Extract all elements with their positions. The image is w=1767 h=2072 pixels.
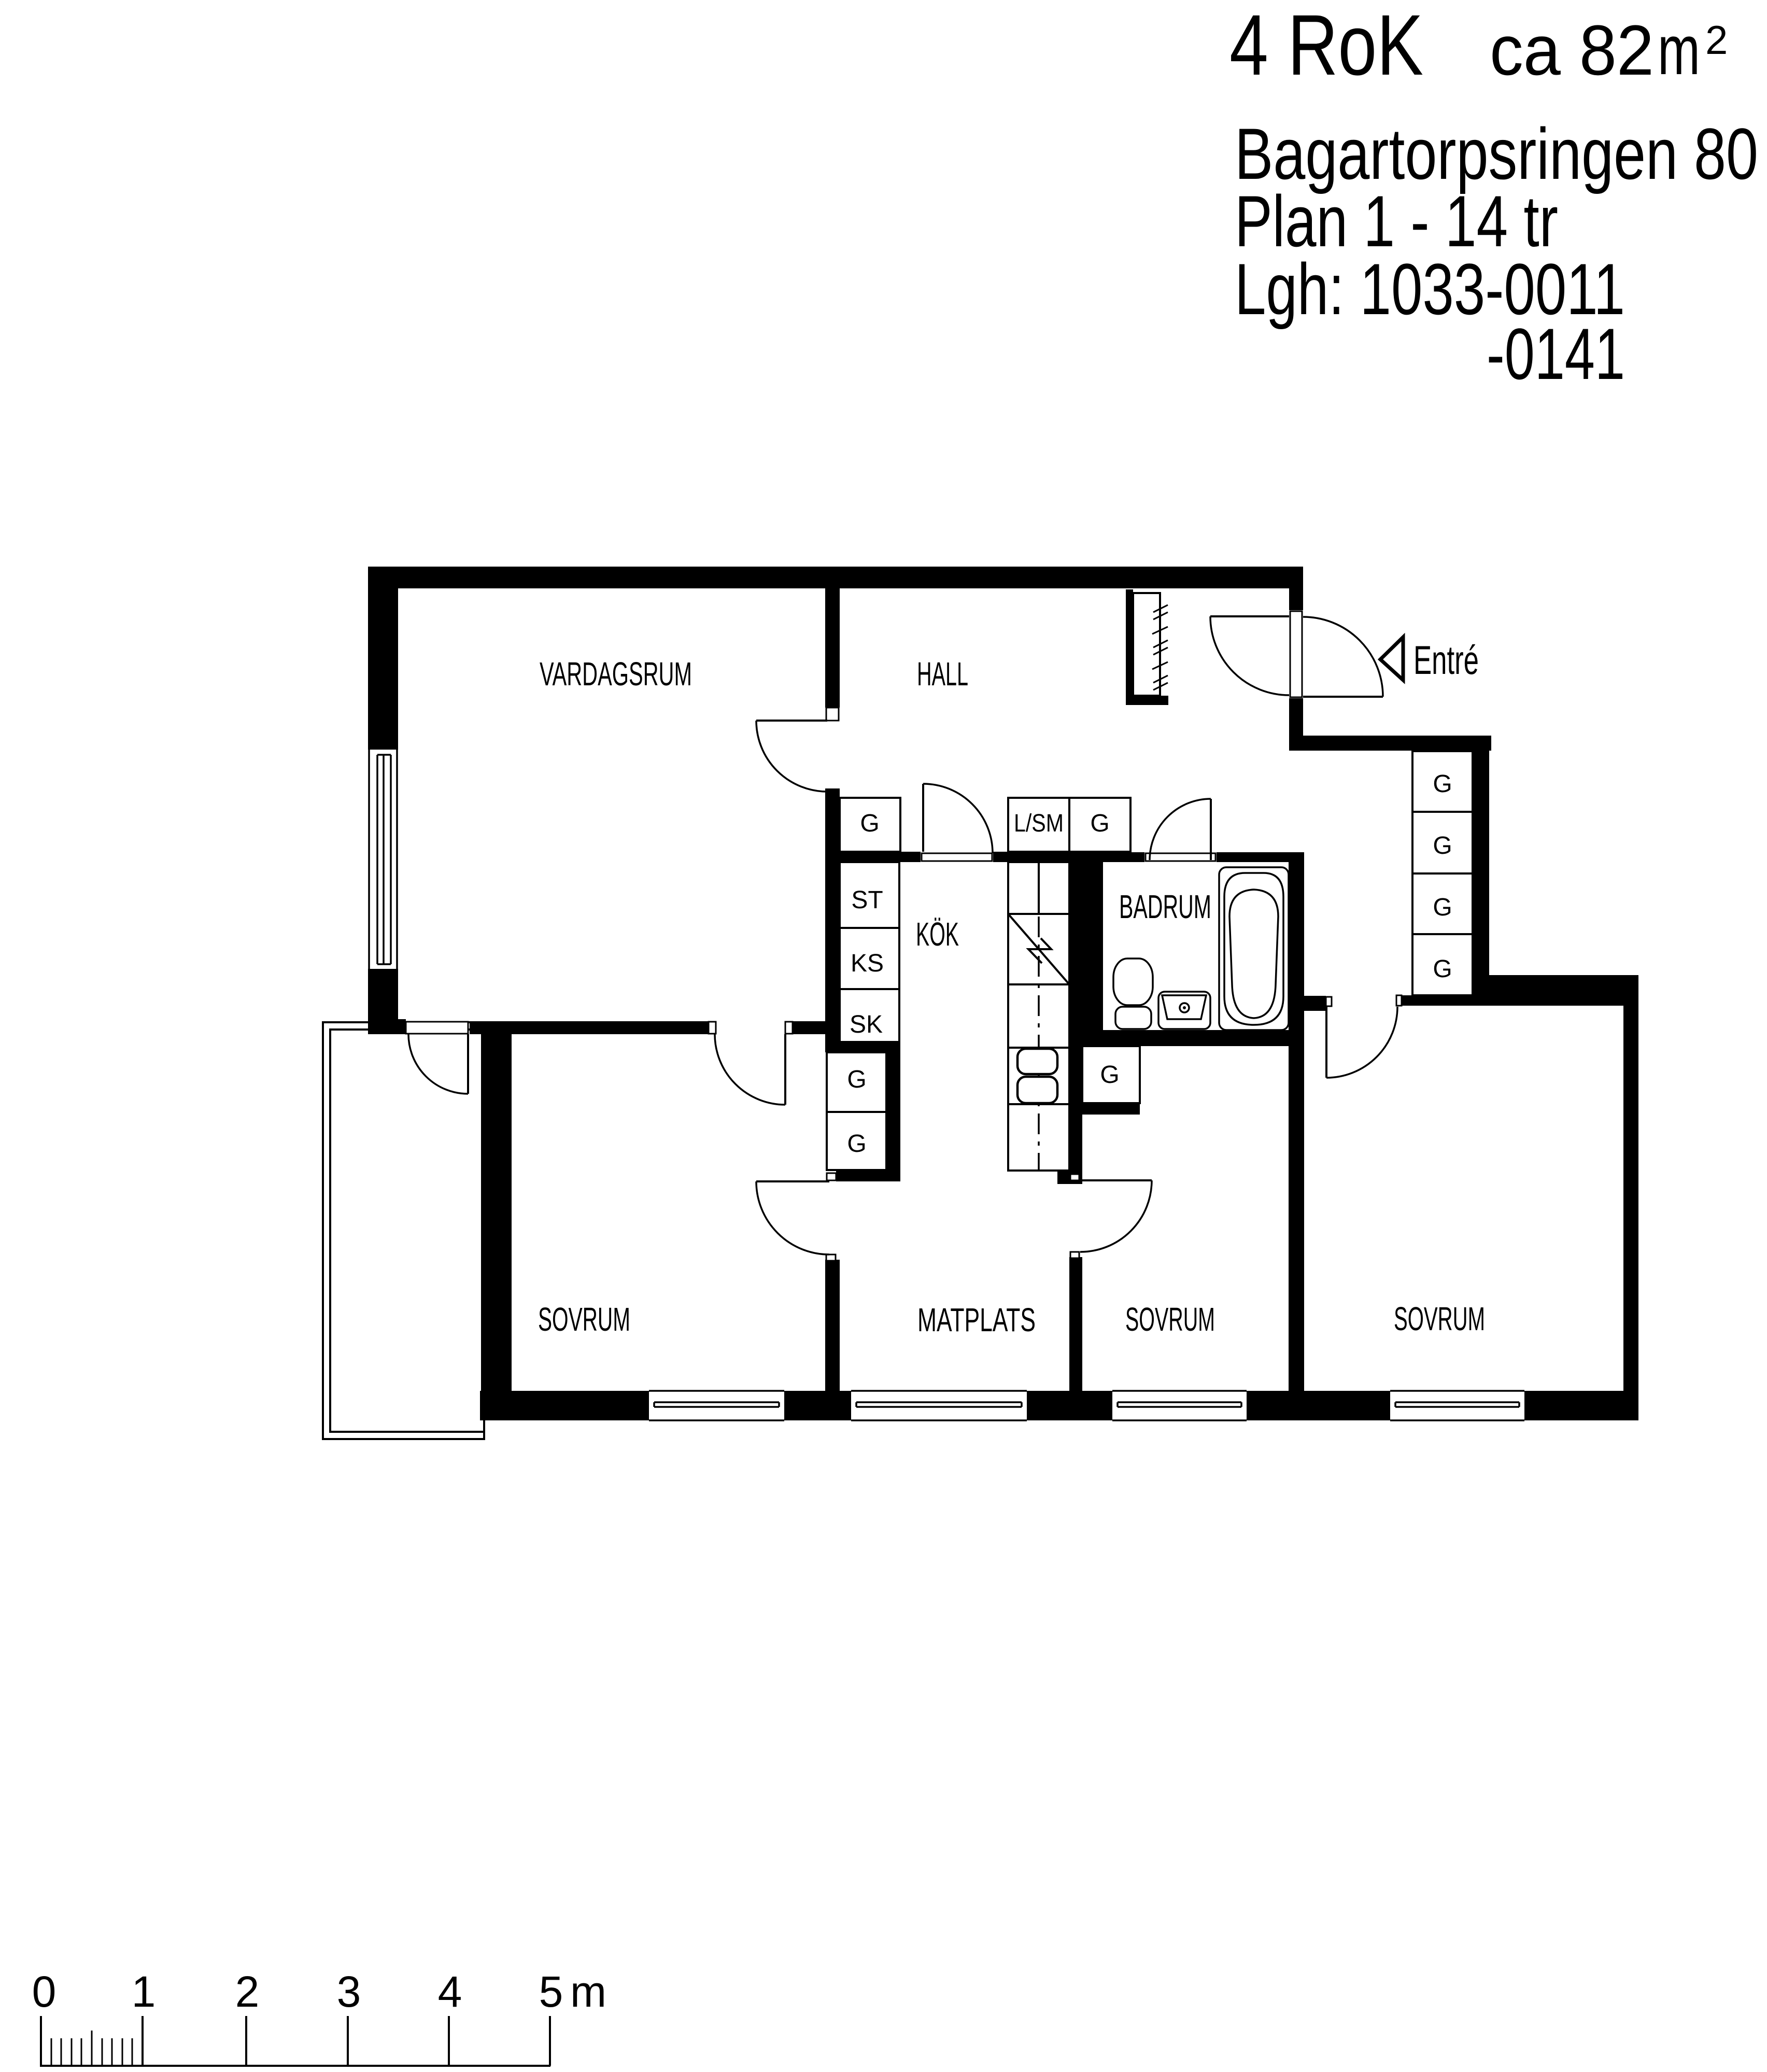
svg-text:KS: KS xyxy=(851,950,884,977)
svg-text:m: m xyxy=(1658,11,1700,89)
svg-text:Entré: Entré xyxy=(1413,637,1479,683)
svg-text:SOVRUM: SOVRUM xyxy=(1125,1301,1215,1338)
svg-text:2: 2 xyxy=(1705,17,1728,63)
svg-text:4: 4 xyxy=(438,1967,462,2016)
svg-text:-0141: -0141 xyxy=(1487,313,1625,394)
svg-text:G: G xyxy=(1433,832,1452,859)
svg-text:G: G xyxy=(860,810,879,837)
svg-text:SOVRUM: SOVRUM xyxy=(538,1301,630,1338)
svg-text:G: G xyxy=(1433,955,1452,983)
svg-text:MATPLATS: MATPLATS xyxy=(917,1301,1036,1338)
svg-text:5: 5 xyxy=(539,1967,563,2016)
svg-text:ca 82: ca 82 xyxy=(1490,11,1654,90)
svg-text:L/SM: L/SM xyxy=(1014,810,1064,837)
svg-text:BADRUM: BADRUM xyxy=(1119,888,1211,925)
svg-text:G: G xyxy=(847,1066,866,1093)
svg-text:ST: ST xyxy=(851,886,883,914)
svg-text:G: G xyxy=(847,1130,866,1158)
svg-text:0: 0 xyxy=(32,1967,56,2016)
svg-text:KÖK: KÖK xyxy=(916,915,959,953)
svg-text:2: 2 xyxy=(235,1967,260,2016)
svg-text:G: G xyxy=(1433,894,1452,921)
svg-text:SK: SK xyxy=(850,1011,883,1038)
svg-text:G: G xyxy=(1433,770,1452,798)
svg-text:3: 3 xyxy=(337,1967,361,2016)
svg-text:HALL: HALL xyxy=(917,655,968,693)
svg-text:G: G xyxy=(1100,1061,1119,1089)
svg-text:VARDAGSRUM: VARDAGSRUM xyxy=(540,655,692,693)
svg-text:G: G xyxy=(1090,810,1109,837)
svg-text:4 RoK: 4 RoK xyxy=(1229,0,1423,93)
svg-text:m: m xyxy=(570,1967,606,2016)
svg-text:SOVRUM: SOVRUM xyxy=(1394,1300,1485,1337)
svg-text:1: 1 xyxy=(132,1967,156,2016)
